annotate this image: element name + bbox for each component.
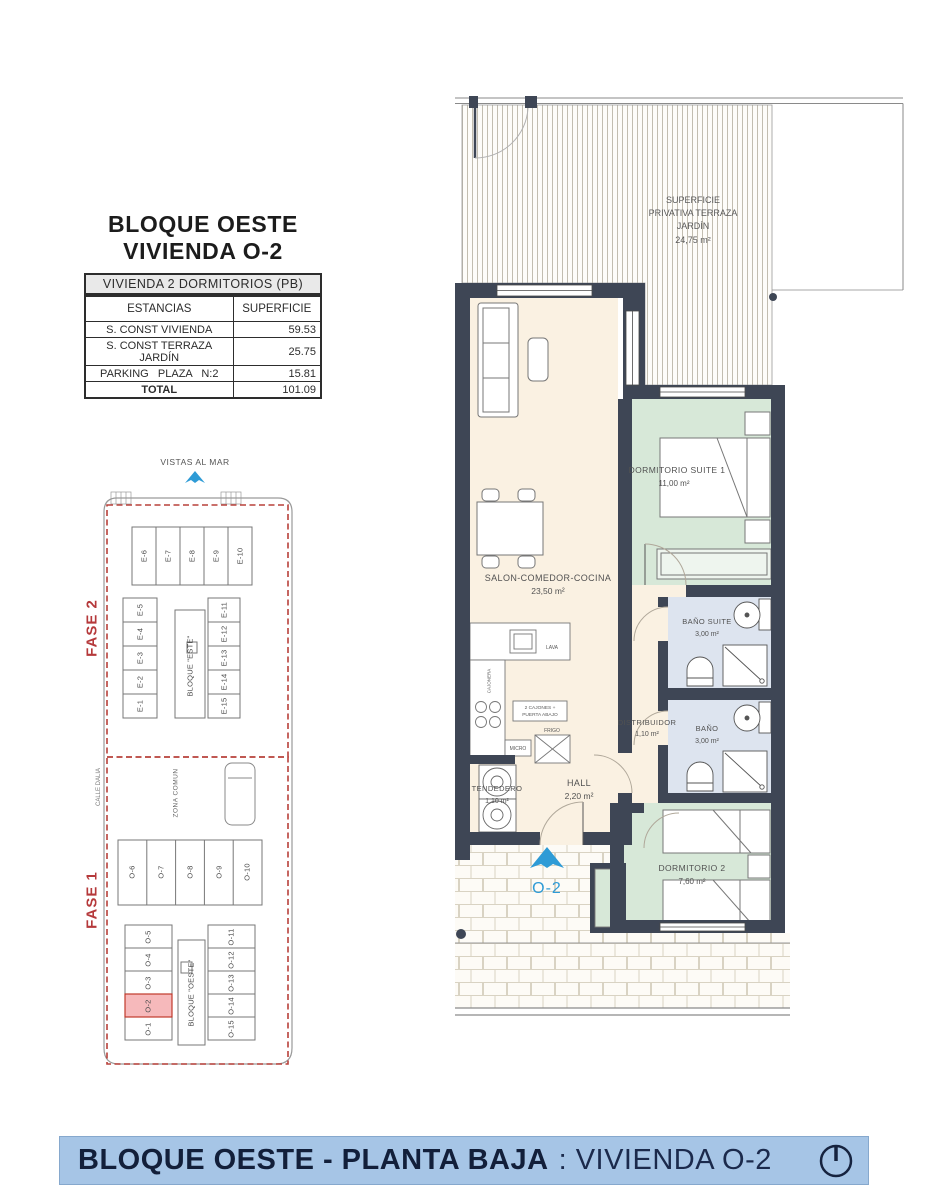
- cajonera-label: CAJONERA: [487, 669, 492, 694]
- unit-label: O-14: [227, 997, 236, 1014]
- table-row: PARKING PLAZA N:2 15.81: [85, 366, 321, 382]
- distribuidor-area: 1,10 m²: [635, 731, 659, 738]
- wardrobe-suite: [657, 549, 771, 579]
- row-estancia: S. CONST TERRAZA JARDÍN: [85, 338, 233, 366]
- footer-title-rest: : VIVIENDA O-2: [559, 1144, 772, 1177]
- vistas-al-mar-label: VISTAS AL MAR: [160, 457, 229, 467]
- dormitorio2-area: 7,60 m²: [678, 877, 705, 886]
- unit-label: O-15: [227, 1020, 236, 1037]
- unit-label: E-9: [212, 550, 221, 562]
- unit-label: E-5: [136, 604, 145, 616]
- title-line-2: VIVIENDA O-2: [84, 238, 322, 265]
- row-superficie: 101.09: [233, 382, 321, 399]
- terraza-label-3: JARDÍN: [677, 221, 710, 231]
- table-row: S. CONST VIVIENDA 59.53: [85, 322, 321, 338]
- row-estancia: PARKING PLAZA N:2: [85, 366, 233, 382]
- bloque-oeste-label: BLOQUE "OESTE": [187, 959, 196, 1026]
- fase1-label: FASE 1: [85, 871, 101, 929]
- fase1-boundary: [107, 757, 288, 1064]
- bano-suite-label: BAÑO SUITE: [682, 617, 731, 626]
- bano-area: 3,00 m²: [695, 738, 719, 745]
- unit-label: E-13: [220, 650, 229, 667]
- unit-label: E-12: [220, 626, 229, 643]
- parked-car: [225, 763, 255, 825]
- unit-label: O-11: [227, 929, 236, 946]
- terraza-label-1: SUPERFICIE: [666, 195, 720, 205]
- sofa: [478, 303, 518, 417]
- tendedero-area: 1,10 m²: [485, 798, 509, 805]
- unit-label: E-1: [136, 700, 145, 712]
- unit-label: E-3: [136, 652, 145, 664]
- cajones-label-1: 2 CAJONES +: [525, 705, 556, 711]
- hall-label: HALL: [567, 778, 591, 788]
- unit-label-o2: O-2: [144, 999, 153, 1012]
- hall-area: 2,20 m²: [565, 791, 594, 801]
- zona-comun-label: ZONA COMUN: [173, 768, 180, 817]
- bano-label: BAÑO: [696, 724, 719, 733]
- fase2-boundary: [107, 505, 288, 757]
- table-row-total: TOTAL 101.09: [85, 382, 321, 399]
- row-estancia: S. CONST VIVIENDA: [85, 322, 233, 338]
- unit-label: E-2: [136, 676, 145, 688]
- page: { "colors": { "wall": "#3e4655", "floor_…: [0, 0, 927, 1200]
- unit-label: E-14: [220, 674, 229, 691]
- unit-label: E-6: [140, 550, 149, 562]
- micro-label: MICRO: [510, 746, 527, 752]
- terraza-label-2: PRIVATIVA TERRAZA: [649, 208, 738, 218]
- tendedero-label: TENDEDERO: [472, 784, 523, 793]
- unit-label: E-7: [164, 550, 173, 562]
- row-superficie: 25.75: [233, 338, 321, 366]
- unit-label: E-8: [188, 550, 197, 562]
- bano-suite-area: 3,00 m²: [695, 631, 719, 638]
- unit-label: E-10: [236, 548, 245, 565]
- unit-label: E-4: [136, 628, 145, 640]
- unit-label: O-1: [144, 1022, 153, 1035]
- row-superficie: 59.53: [233, 322, 321, 338]
- unit-label: O-3: [144, 976, 153, 989]
- unit-label: O-12: [227, 951, 236, 968]
- patio-gate-post: [456, 929, 466, 939]
- bloque-este-label: BLOQUE "ESTE": [186, 635, 195, 696]
- page-title: BLOQUE OESTE VIVIENDA O-2: [84, 211, 322, 265]
- unit-label: E-15: [220, 698, 229, 715]
- dormitorio1-area: 11,00 m²: [659, 479, 690, 488]
- salon-area: 23,50 m²: [531, 586, 565, 596]
- row-estancia: TOTAL: [85, 382, 233, 399]
- dormitorio1-label: DORMITORIO SUITE 1: [629, 465, 726, 475]
- sea-direction-arrow-icon: [185, 471, 205, 483]
- col-superficie: SUPERFICIE: [233, 296, 321, 322]
- table-header-row: ESTANCIAS SUPERFICIE: [85, 296, 321, 322]
- frigo-label: FRIGO: [544, 728, 560, 734]
- unit-label: O-7: [157, 865, 166, 878]
- site-plan: VISTAS AL MAR FASE 2 FASE 1 CALLE DALIA …: [85, 450, 310, 1080]
- entrance-unit-label: O-2: [532, 880, 562, 897]
- area-table-caption: VIVIENDA 2 DORMITORIOS (PB): [84, 273, 322, 295]
- unit-label: O-8: [186, 865, 195, 878]
- table-row: S. CONST TERRAZA JARDÍN 25.75: [85, 338, 321, 366]
- side-table: [528, 338, 548, 381]
- calle-dalia-label: CALLE DALIA: [96, 768, 102, 806]
- distribuidor-label: DISTRIBUIDOR: [618, 718, 677, 727]
- terraza-area: 24,75 m²: [675, 235, 711, 245]
- col-estancias: ESTANCIAS: [85, 296, 233, 322]
- cajones-label-2: PUERTA ABAJO: [522, 712, 558, 718]
- salon-label: SALON-COMEDOR-COCINA: [485, 573, 612, 583]
- unit-label: O-13: [227, 974, 236, 991]
- footer-title-bar: BLOQUE OESTE - PLANTA BAJA : VIVIENDA O-…: [59, 1136, 869, 1185]
- area-table: VIVIENDA 2 DORMITORIOS (PB) ESTANCIAS SU…: [84, 273, 322, 399]
- unit-label: O-9: [215, 865, 224, 878]
- title-line-1: BLOQUE OESTE: [84, 211, 322, 238]
- unit-label: E-11: [220, 602, 229, 618]
- fase2-label: FASE 2: [85, 599, 101, 657]
- dormitorio2-label: DORMITORIO 2: [659, 863, 726, 873]
- row-superficie: 15.81: [233, 366, 321, 382]
- footer-title-bold: BLOQUE OESTE - PLANTA BAJA: [78, 1144, 549, 1177]
- gate-hinge: [769, 293, 777, 301]
- unit-label: O-5: [144, 930, 153, 943]
- unit-label: O-10: [243, 863, 252, 880]
- unit-label: O-4: [144, 953, 153, 966]
- sidewalk-edge: [455, 1008, 790, 1015]
- lava-label: LAVA: [546, 645, 559, 651]
- unit-label: O-6: [128, 865, 137, 878]
- north-compass-icon: [817, 1142, 855, 1180]
- floor-plan: SUPERFICIE PRIVATIVA TERRAZA JARDÍN 24,7…: [435, 85, 905, 1085]
